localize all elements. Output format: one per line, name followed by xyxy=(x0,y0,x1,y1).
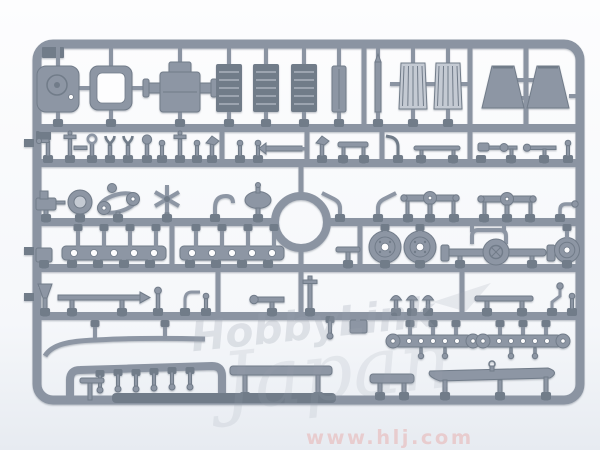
part-vent-box xyxy=(332,66,346,112)
part-slat-box-1 xyxy=(216,64,242,112)
sprue-photo: Plastic model kit sprue photograph Photo… xyxy=(0,0,600,450)
part-hatch-panel xyxy=(37,66,79,112)
part-hull-frame xyxy=(90,66,132,110)
watermark-url: www.hlj.com xyxy=(306,426,474,449)
part-radiator-grille-1 xyxy=(399,63,427,109)
part-radiator-grille-2 xyxy=(434,63,462,109)
part-rod-vertical xyxy=(375,54,381,112)
part-slat-box-2 xyxy=(253,64,279,112)
part-slat-box-3 xyxy=(291,64,317,112)
